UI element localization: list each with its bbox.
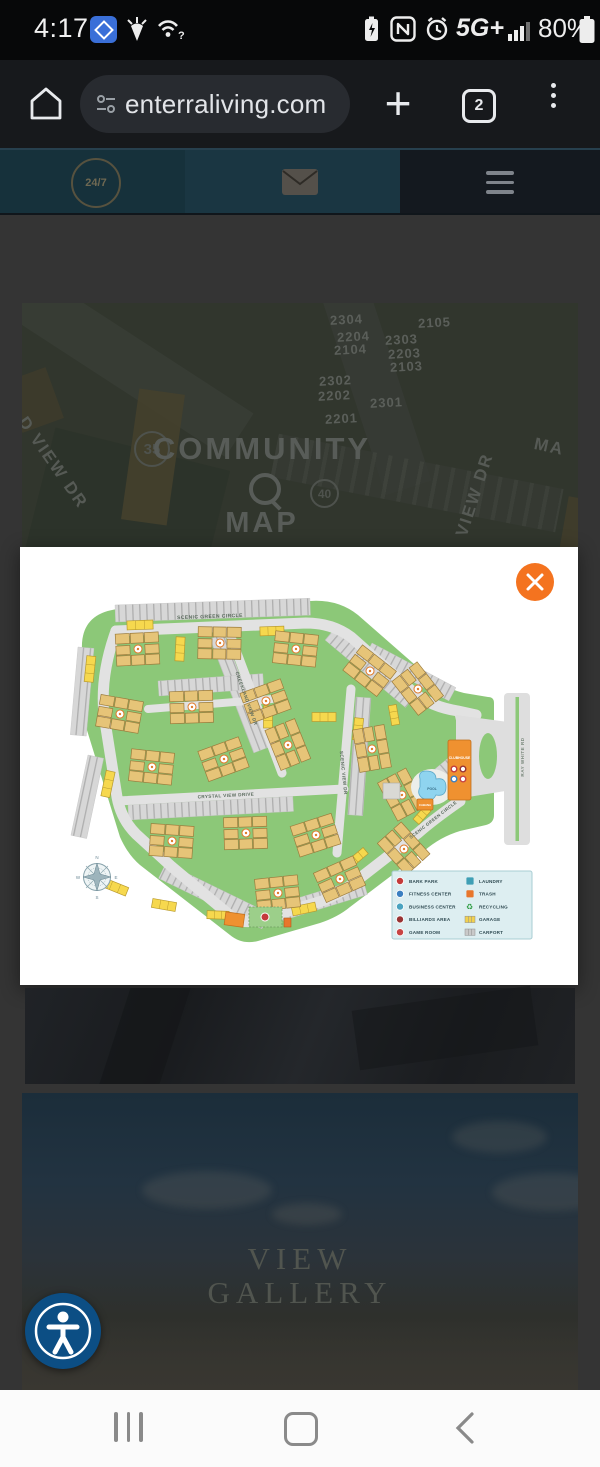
street-ray-white: RAY WHITE RD: [520, 737, 525, 776]
recents-button[interactable]: [114, 1412, 143, 1442]
rooftops-silhouette: [22, 1318, 578, 1390]
svg-text:?: ?: [178, 30, 185, 42]
legend-label: GARAGE: [479, 917, 500, 922]
legend-label: GAME ROOM: [409, 930, 440, 935]
clock-time: 4:17: [34, 13, 89, 44]
svg-text:♻: ♻: [466, 903, 473, 912]
compass-rose: N E S W: [76, 855, 118, 900]
garage: [312, 713, 336, 722]
building-cluster: [96, 694, 144, 733]
building-cluster: [254, 875, 300, 911]
cabana-label: CABANA: [419, 803, 431, 807]
view-gallery-section[interactable]: VIEW GALLERY: [22, 1093, 578, 1390]
community-title: COMMUNITY: [112, 431, 412, 467]
legend-label: LAUNDRY: [479, 879, 503, 884]
alarm-clock-icon: [424, 15, 450, 43]
legend-label: CARPORT: [479, 930, 503, 935]
compass-s: S: [95, 895, 98, 900]
unit-number: 2304: [330, 311, 364, 328]
accessibility-icon: [31, 1299, 95, 1363]
compass-w: W: [76, 875, 81, 880]
status-bar: 4:17 ? 5G+: [0, 0, 600, 60]
building-cluster: [272, 631, 318, 667]
building-cluster: [169, 690, 213, 723]
clubhouse-label: CLUBHOUSE: [449, 756, 471, 760]
accessibility-widget-button[interactable]: [25, 1293, 101, 1369]
close-icon: [525, 572, 545, 592]
garage: [151, 898, 176, 911]
building-cluster: [149, 824, 194, 859]
building-cluster: [128, 749, 174, 785]
unit-number: 2201: [325, 410, 359, 427]
modal-close-button[interactable]: [516, 563, 554, 601]
tab-switcher-button[interactable]: 2: [462, 89, 496, 123]
battery-icon: [578, 15, 596, 45]
phone-screen: 4:17 ? 5G+: [0, 0, 600, 1467]
home-icon[interactable]: [26, 84, 66, 124]
building-cluster: [223, 816, 267, 849]
utility-building: [383, 783, 400, 799]
gallery-title-top: VIEW: [22, 1241, 578, 1277]
map-title: MAP: [112, 507, 412, 540]
bg-street-corner: MA: [532, 434, 566, 460]
map-legend: BARK PARKFITNESS CENTERBUSINESS CENTERBI…: [392, 871, 532, 939]
unit-number: 2104: [334, 341, 368, 358]
tab-count: 2: [475, 97, 484, 115]
compass-n: N: [95, 855, 98, 860]
legend-label: FITNESS CENTER: [409, 892, 452, 897]
url-text: enterraliving.com: [125, 89, 326, 120]
legend-label: TRASH: [479, 892, 496, 897]
trash-icon: [284, 918, 291, 927]
building-cluster: [198, 627, 242, 660]
legend-label: RECYCLING: [479, 904, 508, 909]
legend-label: BUSINESS CENTER: [409, 904, 456, 909]
building-cluster: [115, 632, 160, 666]
wifi-question-icon: ?: [156, 16, 186, 42]
browser-toolbar: enterraliving.com + 2: [0, 60, 600, 150]
legend-label: BARK PARK: [409, 879, 439, 884]
site-header: 24/7: [0, 150, 600, 215]
interior-photo-darkened: [25, 988, 575, 1084]
site-map: RAY WHITE RD POOL CLUBHOUSE CABANA: [20, 547, 578, 985]
site-settings-icon: [94, 92, 118, 116]
garage: [175, 637, 185, 661]
url-bar[interactable]: enterraliving.com: [80, 75, 350, 133]
notification-badge-icon: [90, 16, 117, 43]
gallery-title-bottom: GALLERY: [22, 1275, 578, 1311]
back-button[interactable]: [452, 1410, 478, 1446]
hamburger-menu-icon[interactable]: [486, 171, 514, 194]
24-7-logo[interactable]: 24/7: [71, 158, 121, 208]
legend-label: BILLIARDS AREA: [409, 917, 451, 922]
browser-menu-icon[interactable]: [551, 83, 556, 108]
garage: [127, 620, 153, 630]
unit-number: 2301: [370, 394, 404, 411]
home-button[interactable]: [284, 1412, 318, 1446]
building-cluster: [352, 725, 391, 773]
new-tab-button[interactable]: +: [376, 73, 420, 133]
logo-text: 24/7: [85, 177, 106, 189]
bark-park-icon: [261, 913, 269, 921]
compass-e: E: [114, 875, 117, 880]
unit-number: 2202: [318, 387, 352, 404]
battery-saver-icon: [362, 15, 382, 43]
unit-number: 2103: [390, 358, 424, 375]
nfc-icon: [390, 16, 416, 42]
android-nav-bar: [0, 1390, 600, 1467]
pool-label: POOL: [427, 787, 437, 791]
carrot-notification-icon: [126, 15, 148, 43]
network-type-label: 5G+: [456, 14, 504, 43]
search-icon: [249, 473, 281, 505]
maintenance-building: [224, 912, 245, 928]
parking-40-badge: 40: [310, 479, 339, 508]
signal-bars-icon: [508, 19, 534, 43]
envelope-icon[interactable]: [281, 168, 319, 196]
unit-number: 2105: [418, 314, 452, 331]
community-map-modal: RAY WHITE RD POOL CLUBHOUSE CABANA: [20, 547, 578, 985]
